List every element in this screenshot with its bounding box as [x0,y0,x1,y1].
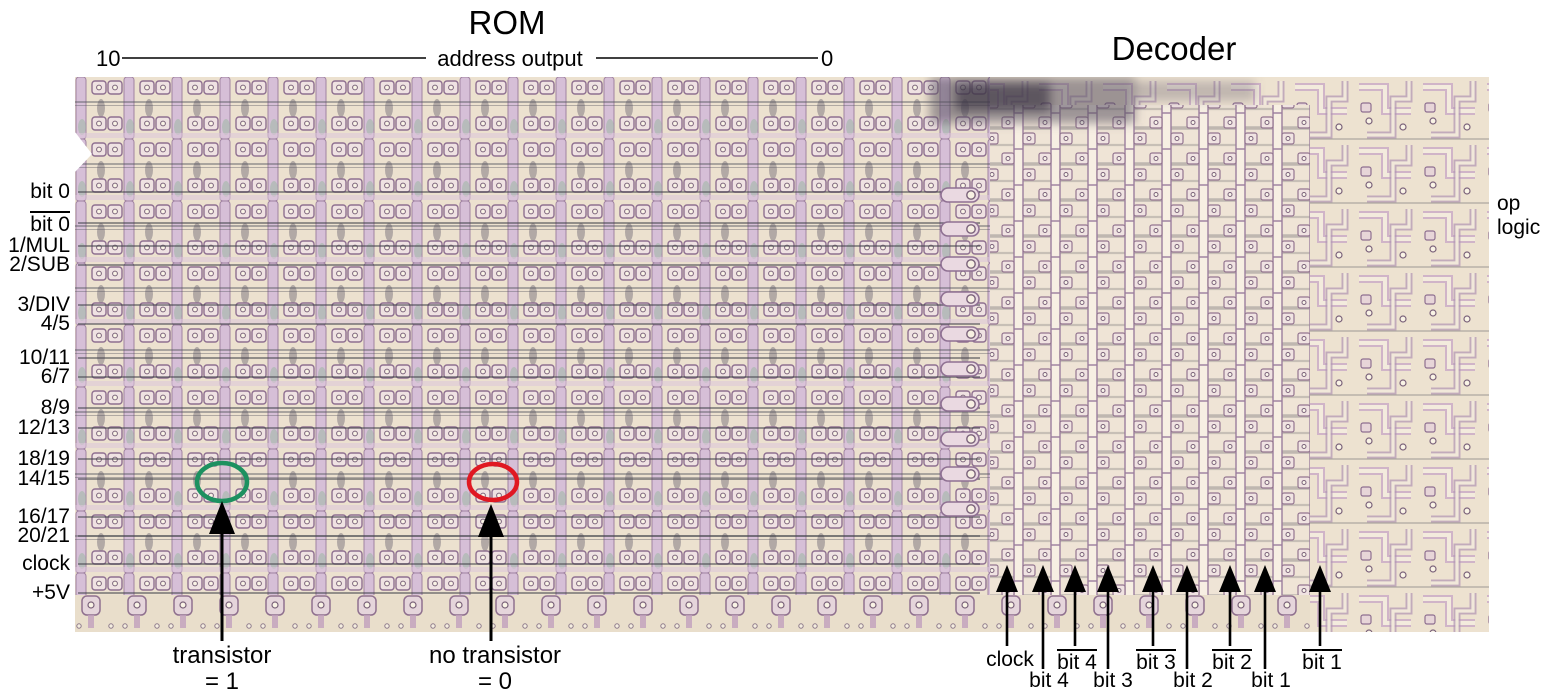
op-logic-line1: op [1497,192,1540,216]
rom-row-label-6-7: 6/7 [0,366,70,387]
rom-row-label-2sub: 2/SUB [0,254,70,275]
rom-row-label-clock: clock [0,553,70,574]
die-photo [75,77,1489,632]
decoder-signal-bit1: bit 1 [1229,670,1313,691]
decoder-signal-bit1-bar: bit 1 [1280,649,1364,673]
legend-transistor-label: transistor [132,643,312,669]
legend-no-transistor-label: no transistor [385,643,605,669]
annotated-die-figure: ROM Decoder 10 address output 0 bit 0 bi… [0,0,1553,698]
address-scale-right-tick: 0 [821,46,833,72]
op-logic-line2: logic [1497,216,1540,240]
legend-transistor-value: = 1 [132,669,312,695]
rom-row-label-5v: +5V [0,582,70,603]
rom-row-label-20-21: 20/21 [0,525,70,546]
legend-no-transistor-value: = 0 [385,669,605,695]
rom-row-label-4-5: 4/5 [0,313,70,334]
rom-row-label-12-13: 12/13 [0,417,70,438]
decoder-title: Decoder [1094,30,1254,68]
rom-row-label-bit0-bar: bit 0 [0,211,70,235]
rom-title: ROM [437,4,577,42]
rom-row-label-18-19: 18/19 [0,448,70,469]
legend-transistor: transistor = 1 [132,643,312,695]
address-scale-left-tick: 10 [96,46,120,72]
rom-row-label-bit0: bit 0 [0,181,70,202]
rom-row-label-14-15: 14/15 [0,468,70,489]
rom-row-label-8-9: 8/9 [0,397,70,418]
address-scale-label: address output [428,46,592,72]
op-logic-label: op logic [1497,192,1540,240]
legend-no-transistor: no transistor = 0 [385,643,605,695]
